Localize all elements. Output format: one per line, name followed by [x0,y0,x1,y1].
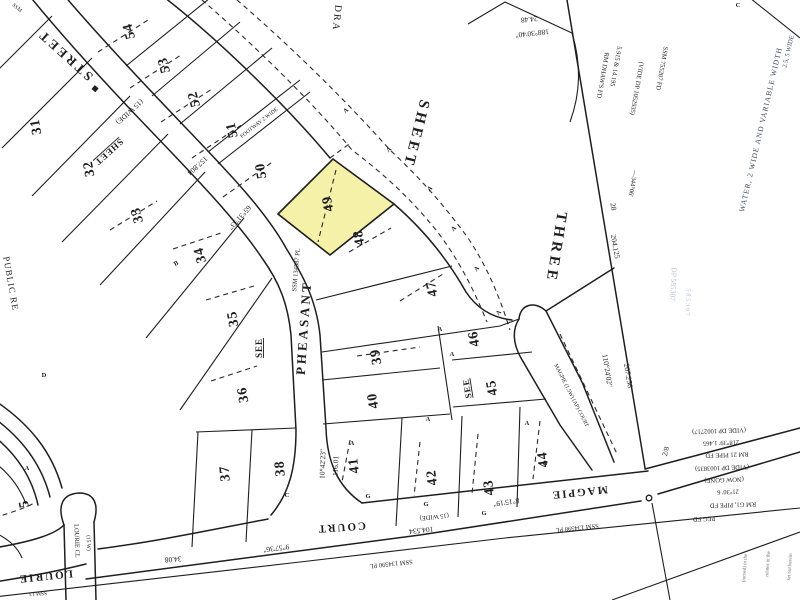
sheet-small-label: SHEET [93,137,126,168]
peg-note-line: PEG FD [693,515,716,523]
peg-note-line: (VIDE DP 1003835) [695,463,749,472]
street-label-lourie-cl: LOURIE CL [72,524,80,558]
lot-label-50: 50 [253,161,271,179]
easement-letter-marker: A [426,416,431,423]
lot-label-31: 31 [28,117,46,135]
bearing-10-42-23: 10°42'23" [317,449,327,479]
lot-label-48: 48 [351,228,369,246]
vide-dp-1052935: (VIDE DP 1052935) [628,61,644,115]
lane-edges [514,268,614,470]
lot-separators-3738 [192,428,296,547]
junction-mark [646,495,652,501]
bearing-8-15-19: 8°15'19" [493,496,520,509]
water-easement-note: WATER, 2 WIDE AND VARIABLE WIDTH [737,46,784,213]
lot-label-34: 34 [191,245,210,264]
lot-label-39: 39 [368,347,386,365]
sheet-word: SHEET [400,98,432,170]
dra-partial-label: DRA [330,4,344,32]
easement-notes: WATER, 2 WIDE AND VARIABLE WIDTH 2.5, 5 … [737,35,795,213]
see-note-left: SEE [254,338,264,358]
distance-157-804: 157.804 [185,154,209,177]
peg-note-line: 21°30' 6 [716,488,739,496]
easement-letter-marker: A [450,351,455,358]
easement-letter-marker: A [25,465,30,472]
distance-207-256: 207.256 [622,363,635,389]
street-label-street: STREET [34,27,96,85]
lot-label-52: 52 [185,89,204,108]
lot-label-5: 5 [16,498,32,508]
lot-label-33: 33 [128,205,147,224]
peg-note-line: 218°39' 1.465 [703,438,740,446]
bearing-110-24-02: 110°24'02" [600,353,614,387]
lot-label-54: 54 [120,21,139,40]
ssm-134590-pl: SSM 134590 PL [369,558,413,569]
bearing-9-57-36: 9°57'36" [263,542,290,554]
lot-label-47: 47 [424,279,442,297]
side-note-labels: (turned) in the relates in the set out h… [742,550,794,582]
wide-easement-note: 2.5, 5 WIDE [781,35,795,69]
street-label-pheasant: PHEASANT [293,280,315,376]
rm-dhaws-fd: RM DHAW'S FD [595,52,610,99]
public-reserve-label: PUBLIC RE [1,256,20,312]
lot-label-42: 42 [424,469,441,487]
easement-letter-marker: G [542,460,547,467]
easement-letter-marker: A [350,440,355,447]
lot-label-36: 36 [235,385,253,403]
lot-label-46: 46 [466,329,484,347]
easement-letter-marker: G [481,510,486,517]
peg-note-line: (VIDE DP 1002717) [692,426,746,435]
lot-label-38: 38 [272,460,288,477]
distance-5-915: 5.915 & 14.195 [608,46,622,87]
distance-28: 28 [608,202,618,211]
lot-label-49: 49 [320,194,338,212]
peg-note-line: (NOW GONE) [704,475,744,483]
traverse-lines [0,503,800,600]
distance-116-01: 116.01 [331,455,341,476]
three-word: THREE [542,211,569,285]
lot-label-51: 51 [223,120,241,139]
ssm-134598-pl: SSM 134598 PL [555,522,599,533]
fraction-2-8: 2/8 [660,445,671,457]
lane-label-magpie-ap-court: MAGPIE (1.5W) (AP) COURT [552,363,590,429]
road-survey-dot [92,85,99,92]
easement-letter-marker: A [473,265,482,273]
side-note: relates in the [765,550,772,577]
see-note-mid: SEE [461,378,474,399]
easement-letter-marker: A [438,326,443,333]
easement-letter-marker: D [42,372,47,379]
plan-canvas: 54 53 52 51 50 49 48 47 46 45 39 40 41 4… [0,0,800,600]
side-note: set out herein [787,553,794,581]
easement-letter-marker: A [450,225,458,233]
road-width-top: (15 WIDE) [114,97,146,127]
easement-letter-marker: A [342,106,350,115]
road-magpie-court-edges [86,428,800,579]
dashed-lot-lines [0,20,618,518]
lot-label-43: 43 [481,479,498,497]
bearing-188-30-40: 188°30'40" [515,27,549,39]
letter-markers: A A A A A A A A A A A G G G G B C D A C [25,2,741,517]
ssm-755207-fd: SSM 755207 FD [654,46,669,91]
lot-label-40: 40 [365,391,383,409]
easement-letter-marker: C [736,2,741,9]
distance-204-125: 204.125 [609,234,622,260]
survey-plan-scan: 54 53 52 51 50 49 48 47 46 45 39 40 41 4… [0,0,800,600]
peg-note-line: RM G1, PIPE FD [710,500,757,509]
easement-letter-marker: G [423,501,428,508]
easement-letter-marker: A [525,420,530,427]
dp-585307-faint2: 5 8 5 3 0 7 [683,288,691,317]
easement-letter-marker: A [426,185,434,194]
easement-letter-marker: C [285,492,290,499]
road-width-bottom: (15 WIDE) [419,511,449,521]
easement-letter-marker: B [173,259,181,268]
lot-label-45: 45 [484,378,502,396]
distance-24-48: 24.48 [520,14,538,25]
lot-labels: 54 53 52 51 50 49 48 47 46 45 39 40 41 4… [16,21,551,509]
lot-label-35: 35 [225,309,243,327]
side-note: (turned) in the [742,553,749,583]
lot-label-37: 37 [217,465,233,482]
ssm-corner-mark: SSM [11,2,23,14]
distance-104-534: 104.534 [408,525,433,537]
easement-letter-marker: A [385,145,393,154]
distance-34-08: 34.08 [164,554,182,564]
lot-label-41: 41 [346,457,363,475]
ssm-partial-mark: SSM 13 [29,589,48,596]
bearing-344-06: —344°06' [627,169,639,197]
street-label-magpie: MAGPIE [550,483,608,501]
dp-585307-faint: DP 585307 [668,267,679,301]
lot-label-53: 53 [155,55,174,74]
lourie-cl-width: (15 W) [85,535,93,551]
drainage-boundary [468,0,800,468]
easement-letter-marker: G [365,493,370,500]
street-label-court: COURT [316,519,366,534]
